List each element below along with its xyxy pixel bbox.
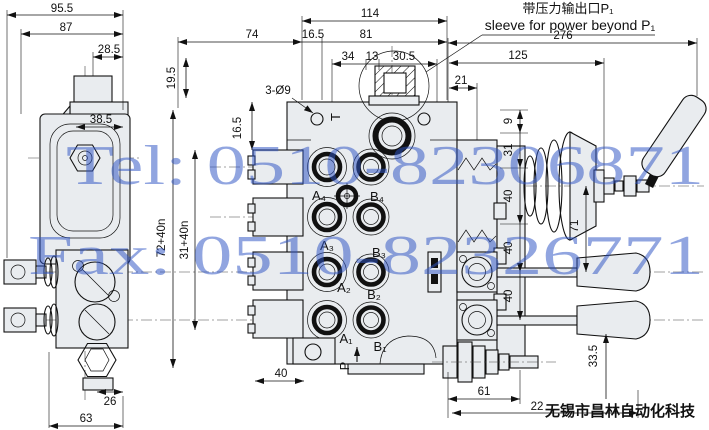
dim-overall-partial: 22: [531, 401, 544, 413]
dim-125: 125: [508, 50, 527, 62]
dim-26: 26: [104, 396, 117, 408]
dim-33-5: 33.5: [588, 345, 600, 367]
side-stub-lower: [4, 308, 36, 332]
callout-cn: 带压力输出口P₁: [522, 1, 614, 16]
dim-74: 74: [246, 29, 259, 41]
holes-label: 3-Ø9: [265, 85, 291, 97]
port-label-b2: B₂: [367, 287, 381, 302]
dim-87: 87: [60, 22, 73, 34]
base-block: [348, 364, 424, 374]
sleeve-flange: [369, 96, 419, 105]
callout-en: sleeve for power beyond P₁: [485, 17, 656, 33]
dim-63: 63: [80, 413, 93, 425]
dim-34: 34: [342, 51, 355, 63]
valve-drawing-svg: 95.5 87 28.5 38.5 26 63 19.5 72+40n 31+4…: [0, 0, 709, 430]
dim-38-5: 38.5: [90, 114, 112, 126]
front-view: [248, 51, 709, 382]
dim-40-p: 40: [275, 368, 288, 380]
dim-13: 13: [366, 51, 379, 63]
dim-28-5: 28.5: [98, 44, 120, 56]
callout: 带压力输出口P₁ sleeve for power beyond P₁: [426, 1, 656, 72]
callout-leader: [426, 35, 482, 72]
side-top-cap: [74, 76, 112, 102]
port-label-a1: A₁: [339, 331, 353, 346]
dim-95-5: 95.5: [51, 3, 73, 15]
watermark-fax: Fax: 0510-82326771: [28, 225, 704, 287]
dim-40-c: 40: [503, 290, 515, 303]
watermark-tel: Tel: 0510-82306871: [66, 135, 704, 197]
dim-16-5: 16.5: [302, 29, 324, 41]
bottom-lever-grip[interactable]: [577, 301, 650, 339]
dim-81: 81: [360, 29, 373, 41]
dim-19-5: 19.5: [166, 67, 178, 89]
dim-9: 9: [503, 118, 515, 124]
company-name: 无锡市昌林自动化科技: [544, 402, 696, 420]
dim-114: 114: [361, 8, 380, 20]
dim-30-5: 30.5: [393, 51, 415, 63]
side-nut-base: [83, 378, 113, 390]
port-label-b1: B₁: [373, 339, 387, 354]
port-label-t: T: [328, 113, 343, 121]
sleeve-bore: [384, 73, 406, 93]
engineering-drawing: 95.5 87 28.5 38.5 26 63 19.5 72+40n 31+4…: [0, 0, 709, 430]
dim-21: 21: [455, 75, 468, 87]
dim-61: 61: [478, 386, 491, 398]
port-label-p: P: [337, 362, 352, 371]
